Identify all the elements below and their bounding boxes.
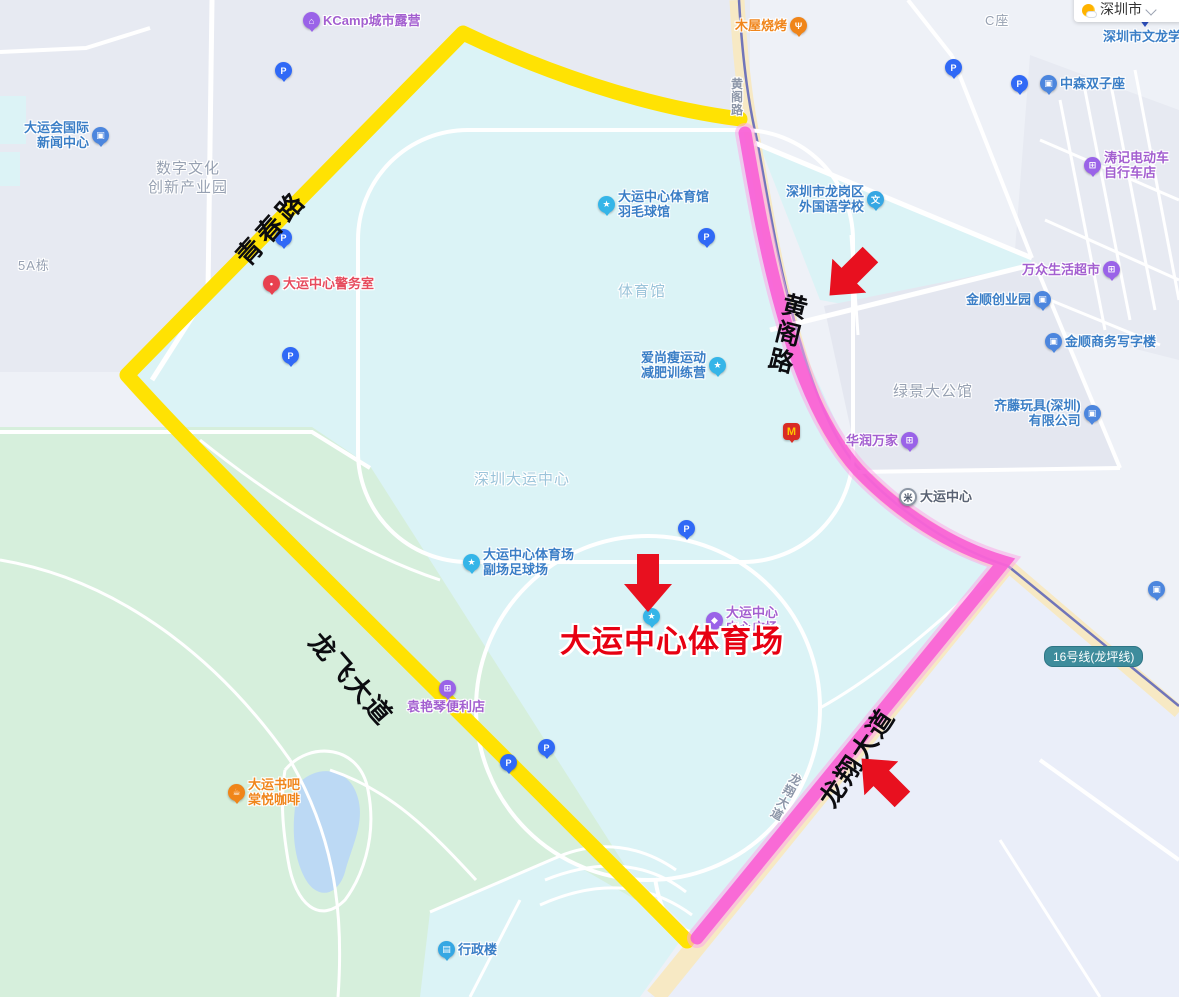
building-icon: ▣ xyxy=(1084,405,1101,422)
poi-label-line: 羽毛球馆 xyxy=(618,204,709,219)
poi-metro-dayun-station[interactable]: 米大运中心 xyxy=(899,488,972,506)
area-label-line: 5A栋 xyxy=(18,258,50,274)
poi-label: 金顺商务写字楼 xyxy=(1065,334,1156,349)
area-label-line: 绿景大公馆 xyxy=(893,383,973,402)
poi-jinshun-office-tower[interactable]: ▣金顺商务写字楼 xyxy=(1045,333,1156,350)
city-selector[interactable]: 深圳市 xyxy=(1074,0,1179,22)
weather-icon xyxy=(1082,4,1095,17)
poi-kcamp-camping[interactable]: ⌂KCamp城市露营 xyxy=(303,12,421,29)
poi-label: 大运中心 xyxy=(920,489,972,504)
poi-label-line: 自行车店 xyxy=(1104,165,1169,180)
poi-label: 大运中心体育场副场足球场 xyxy=(483,547,574,578)
cyan-sliver-2 xyxy=(0,152,20,186)
poi-wanzhong-supermarket[interactable]: ⊞万众生活超市 xyxy=(1022,261,1120,278)
poi-admin-building[interactable]: ▤行政楼 xyxy=(438,941,497,958)
shop-icon: ⊞ xyxy=(901,432,918,449)
building-icon: ▣ xyxy=(1148,581,1165,598)
poi-label-line: 大运中心 xyxy=(920,489,972,504)
poi-label-line: 大运中心警务室 xyxy=(283,276,374,291)
building-icon: ▤ xyxy=(438,941,455,958)
parking-icon[interactable]: P xyxy=(698,228,715,245)
metro-icon: 米 xyxy=(899,488,917,506)
poi-label-line: 金顺商务写字楼 xyxy=(1065,334,1156,349)
poi-universiade-news-center[interactable]: ▣大运会国际新闻中心 xyxy=(24,120,109,151)
poi-label: 涛记电动车自行车店 xyxy=(1104,150,1169,181)
poi-badminton-hall[interactable]: ★大运中心体育馆羽毛球馆 xyxy=(598,189,709,220)
poi-yuanyanqin-store[interactable]: ⊞袁艳琴便利店 xyxy=(407,680,485,714)
camp-icon: ⌂ xyxy=(303,12,320,29)
area-label-line: 深圳大运中心 xyxy=(474,471,570,490)
restaurant-icon: Ψ xyxy=(790,17,807,34)
poi-huarun-vanguard[interactable]: ⊞华润万家 xyxy=(846,432,918,449)
shop-icon: ⊞ xyxy=(1103,261,1120,278)
poi-taoji-ebike-shop[interactable]: ⊞涛记电动车自行车店 xyxy=(1084,150,1169,181)
poi-dayun-bookbar-cafe[interactable]: ☕大运书吧棠悦咖啡 xyxy=(228,777,300,808)
poi-label: 大运中心警务室 xyxy=(283,276,374,291)
poi-stadium-subfield[interactable]: ★大运中心体育场副场足球场 xyxy=(463,547,574,578)
poi-label-line: 金顺创业园 xyxy=(966,292,1031,307)
area-label-shenzhen-universiade-center: 深圳大运中心 xyxy=(474,471,570,490)
poi-label: 深圳市龙岗区外国语学校 xyxy=(786,184,864,215)
school-icon: 文 xyxy=(867,191,884,208)
sports-icon: ★ xyxy=(463,554,480,571)
sports-icon: ★ xyxy=(598,196,615,213)
poi-label-line: 新闻中心 xyxy=(24,135,89,150)
poi-label: 华润万家 xyxy=(846,433,898,448)
poi-label: 大运书吧棠悦咖啡 xyxy=(248,777,300,808)
poi-label: 行政楼 xyxy=(458,942,497,957)
poi-label-line: 齐藤玩具(深圳) xyxy=(994,398,1081,413)
map-canvas[interactable] xyxy=(0,0,1179,997)
poi-label: 齐藤玩具(深圳)有限公司 xyxy=(994,398,1081,429)
poi-muwu-bbq[interactable]: Ψ木屋烧烤 xyxy=(735,17,807,34)
poi-label-line: 大运书吧 xyxy=(248,777,300,792)
area-label-line: C座 xyxy=(985,13,1009,29)
parking-icon[interactable]: P xyxy=(282,347,299,364)
building-icon: ▣ xyxy=(1040,75,1057,92)
poi-label: 深圳市文龙学校 xyxy=(1103,29,1179,44)
parking-icon[interactable]: P xyxy=(1011,75,1028,92)
parking-icon[interactable]: P xyxy=(500,754,517,771)
building-icon: ▣ xyxy=(1045,333,1062,350)
mcdonalds-icon: M xyxy=(783,423,800,440)
poi-label-line: 深圳市文龙学校 xyxy=(1103,29,1179,44)
poi-label-line: 中森双子座 xyxy=(1060,76,1125,91)
poi-aishangshou-camp[interactable]: ★爱尚瘦运动减肥训练营 xyxy=(641,350,726,381)
poi-label: 金顺创业园 xyxy=(966,292,1031,307)
red-arrow-stadium xyxy=(624,554,672,612)
road-label-huangge-lu-small: 黄阁路 xyxy=(729,78,746,117)
poi-label-line: 副场足球场 xyxy=(483,562,574,577)
poi-label: 大运中心体育馆羽毛球馆 xyxy=(618,189,709,220)
area-label-line: 数字文化 xyxy=(113,160,263,179)
poi-label-line: 爱尚瘦运动 xyxy=(641,350,706,365)
parking-icon[interactable]: P xyxy=(678,520,695,537)
poi-jinshun-business-park[interactable]: ▣金顺创业园 xyxy=(966,291,1051,308)
destination-label: 大运中心体育场 xyxy=(560,616,784,661)
sports-icon: ★ xyxy=(709,357,726,374)
poi-label: 中森双子座 xyxy=(1060,76,1125,91)
poi-label: 爱尚瘦运动减肥训练营 xyxy=(641,350,706,381)
area-label-building-5a: 5A栋 xyxy=(18,258,50,274)
parking-icon[interactable]: P xyxy=(538,739,555,756)
poi-label-line: 有限公司 xyxy=(994,413,1081,428)
poi-zhongsen-twin-towers[interactable]: ▣中森双子座 xyxy=(1040,75,1125,92)
chevron-down-icon xyxy=(1145,4,1156,15)
poi-wenlong-school[interactable]: 深圳市文龙学校 xyxy=(1103,29,1179,44)
poi-label-line: KCamp城市露营 xyxy=(323,13,421,28)
metro-line-badge: 16号线(龙坪线) xyxy=(1044,646,1143,667)
parking-icon[interactable]: P xyxy=(945,59,962,76)
poi-label-line: 大运会国际 xyxy=(24,120,89,135)
coffee-icon: ☕ xyxy=(228,784,245,801)
poi-label: 木屋烧烤 xyxy=(735,18,787,33)
poi-qiteng-toys[interactable]: ▣齐藤玩具(深圳)有限公司 xyxy=(994,398,1101,429)
area-label-line: 创新产业园 xyxy=(113,179,263,198)
police-icon: • xyxy=(263,275,280,292)
poi-longgang-foreign-language-school[interactable]: 文深圳市龙岗区外国语学校 xyxy=(786,184,884,215)
poi-label-line: 木屋烧烤 xyxy=(735,18,787,33)
poi-label-line: 涛记电动车 xyxy=(1104,150,1169,165)
map-root[interactable]: 深圳市 16号线(龙坪线) 大运中心体育场 ⌂KCamp城市露营▣大运会国际新闻… xyxy=(0,0,1179,997)
poi-label-line: 减肥训练营 xyxy=(641,365,706,380)
building-icon: ▣ xyxy=(92,127,109,144)
area-label-block-c: C座 xyxy=(985,13,1009,29)
shop-icon: ⊞ xyxy=(1084,157,1101,174)
poi-label-line: 大运中心体育馆 xyxy=(618,189,709,204)
poi-label: 大运会国际新闻中心 xyxy=(24,120,89,151)
area-label-lvjing-mansion: 绿景大公馆 xyxy=(893,383,973,402)
poi-dayun-police-office[interactable]: •大运中心警务室 xyxy=(263,275,374,292)
building-icon: ▣ xyxy=(1034,291,1051,308)
poi-label: KCamp城市露营 xyxy=(323,13,421,28)
area-label-line: 体育馆 xyxy=(618,283,666,302)
poi-label-line: 棠悦咖啡 xyxy=(248,792,300,807)
area-label-digital-culture-park: 数字文化创新产业园 xyxy=(113,160,263,198)
shop-icon: ⊞ xyxy=(439,680,456,697)
area-label-gymnasium: 体育馆 xyxy=(618,283,666,302)
poi-mcdonalds[interactable]: M xyxy=(783,423,800,440)
poi-label-line: 行政楼 xyxy=(458,942,497,957)
city-name: 深圳市 xyxy=(1100,0,1142,19)
cyan-sliver-1 xyxy=(0,96,26,144)
poi-label-line: 外国语学校 xyxy=(786,199,864,214)
poi-east-edge-poi[interactable]: ▣ xyxy=(1148,581,1165,598)
poi-label-line: 华润万家 xyxy=(846,433,898,448)
poi-label: 万众生活超市 xyxy=(1022,262,1100,277)
poi-label-line: 深圳市龙岗区 xyxy=(786,184,864,199)
parking-icon[interactable]: P xyxy=(275,62,292,79)
poi-label-line: 大运中心体育场 xyxy=(483,547,574,562)
poi-label-line: 万众生活超市 xyxy=(1022,262,1100,277)
